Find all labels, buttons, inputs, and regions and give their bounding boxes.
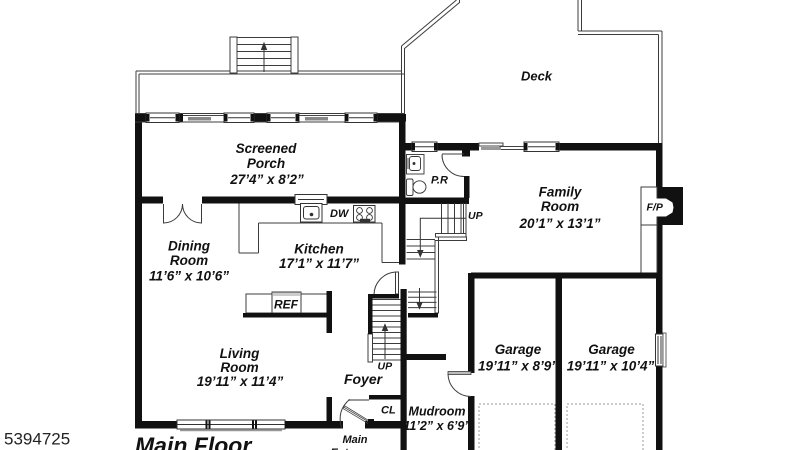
svg-text:Screened: Screened <box>236 141 298 156</box>
svg-text:REF: REF <box>274 298 299 312</box>
svg-text:19’11” x 11’4”: 19’11” x 11’4” <box>197 374 284 389</box>
svg-text:Deck: Deck <box>521 69 553 84</box>
svg-text:P.R: P.R <box>431 175 448 187</box>
svg-text:Garage: Garage <box>495 342 542 357</box>
svg-text:Room: Room <box>220 360 258 375</box>
svg-text:11’2” x 6’9”: 11’2” x 6’9” <box>403 419 471 433</box>
svg-text:Main: Main <box>342 434 367 446</box>
svg-text:Living: Living <box>220 346 261 361</box>
svg-text:Room: Room <box>541 199 579 214</box>
svg-text:Dining: Dining <box>168 239 211 254</box>
svg-text:Kitchen: Kitchen <box>294 242 344 257</box>
svg-text:Foyer: Foyer <box>344 371 384 387</box>
svg-text:Porch: Porch <box>247 156 285 171</box>
svg-text:CL: CL <box>381 405 396 417</box>
svg-text:DW: DW <box>330 208 350 220</box>
svg-text:Mudroom: Mudroom <box>409 405 466 419</box>
svg-text:19’11” x 10’4”: 19’11” x 10’4” <box>567 359 655 374</box>
svg-text:20’1” x 13’1”: 20’1” x 13’1” <box>518 216 600 231</box>
svg-text:Garage: Garage <box>588 342 635 357</box>
svg-text:19’11” x 8’9”: 19’11” x 8’9” <box>478 359 558 374</box>
svg-text:Room: Room <box>170 253 208 268</box>
svg-text:F/P: F/P <box>647 202 664 214</box>
svg-text:UP: UP <box>468 210 484 222</box>
svg-text:5394725: 5394725 <box>4 430 70 449</box>
svg-text:17’1” x 11’7”: 17’1” x 11’7” <box>279 256 359 271</box>
svg-text:27’4” x 8’2”: 27’4” x 8’2” <box>229 172 304 187</box>
svg-text:Main Floor: Main Floor <box>135 433 252 450</box>
svg-text:11’6” x 10’6”: 11’6” x 10’6” <box>149 269 229 284</box>
svg-text:Family: Family <box>539 185 583 200</box>
